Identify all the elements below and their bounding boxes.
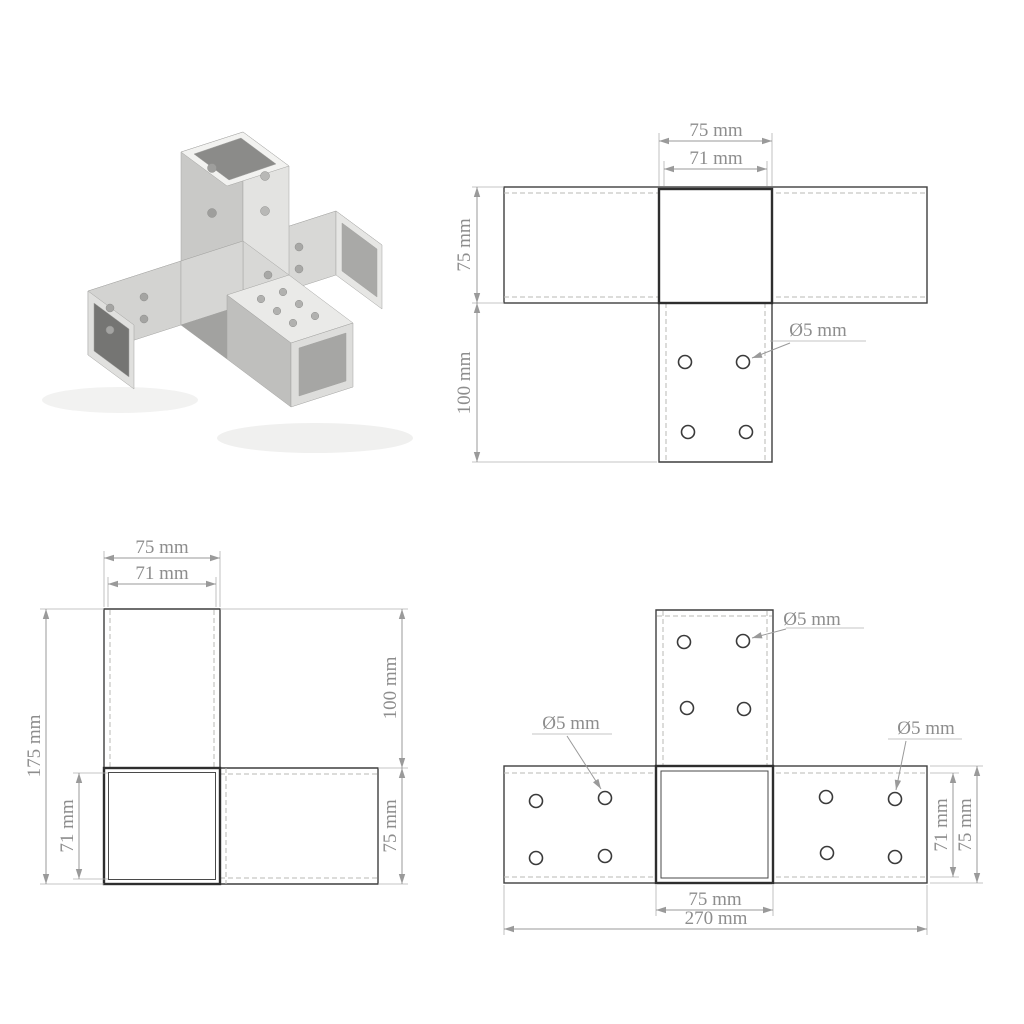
shadow (217, 423, 413, 453)
leg-fill (657, 611, 772, 766)
connector-front-arm (227, 275, 353, 407)
bolt-hole (289, 319, 297, 327)
bolt-hole (273, 307, 281, 315)
dim-side-height-75: 75 mm (454, 187, 504, 303)
bolt-hole (279, 288, 287, 296)
dim-side-height-75: 75 mm (378, 768, 408, 884)
dimension-label: 75 mm (688, 889, 742, 910)
dimension-label: 71 mm (931, 798, 952, 852)
bolt-hole (740, 426, 753, 439)
dim-inner-height-71: 71 mm (57, 773, 108, 879)
bolt-hole (295, 243, 303, 251)
hole-diameter-label: Ø5 mm (783, 609, 841, 630)
bolt-hole (679, 356, 692, 369)
dimension-label: 75 mm (454, 218, 475, 272)
bolt-hole (140, 293, 148, 301)
bolt-hole (821, 847, 834, 860)
composite-figure: 75 mm 71 mm 75 mm 100 mm Ø5 mm (0, 0, 1024, 1024)
product-listing-image: 75 mm 71 mm 75 mm 100 mm Ø5 mm (0, 0, 1024, 1024)
bolt-hole (737, 356, 750, 369)
bolt-hole (820, 791, 833, 804)
horizontal-leg-outline (220, 768, 378, 884)
bolt-hole (678, 636, 691, 649)
dimension-label: 75 mm (689, 120, 743, 141)
hole-diameter-label: Ø5 mm (897, 718, 955, 739)
bolt-hole (738, 703, 751, 716)
bolt-hole (599, 850, 612, 863)
bolt-hole (106, 326, 114, 334)
bolt-hole (530, 795, 543, 808)
dimension-label: 71 mm (689, 148, 743, 169)
bolt-hole (311, 312, 319, 320)
bolt-hole (295, 265, 303, 273)
shadow (42, 387, 198, 413)
post-cross-section (656, 766, 773, 883)
dimension-label: 75 mm (135, 537, 189, 558)
post-cross-section (659, 189, 772, 303)
bolt-hole (889, 793, 902, 806)
drawing-top-right: 75 mm 71 mm 75 mm 100 mm Ø5 mm (454, 120, 927, 462)
bolt-hole (264, 271, 272, 279)
dim-top-width-71: 71 mm (664, 148, 767, 186)
dimension-label: 270 mm (685, 908, 748, 929)
bolt-hole (208, 164, 217, 173)
dimension-label: 100 mm (380, 656, 401, 719)
bolt-hole (599, 792, 612, 805)
dimension-label: 75 mm (380, 799, 401, 853)
dim-leg-height-100: 100 mm (454, 303, 657, 462)
dim-leg-height-100: 100 mm (220, 609, 408, 768)
hole-diameter-label: Ø5 mm (542, 713, 600, 734)
bolt-hole (889, 851, 902, 864)
bolt-hole (682, 426, 695, 439)
bolt-hole (257, 295, 265, 303)
dimension-label: 100 mm (454, 351, 475, 414)
bolt-hole (261, 207, 270, 216)
bolt-hole (261, 172, 270, 181)
drawing-bottom-left: 75 mm 71 mm 175 mm 71 mm (24, 537, 408, 884)
dimension-label: 75 mm (955, 798, 976, 852)
leg-fill (105, 610, 219, 767)
dimension-label: 71 mm (57, 799, 78, 853)
bolt-hole (106, 304, 114, 312)
post-cross-section (104, 768, 220, 884)
bolt-hole (681, 702, 694, 715)
product-photo (42, 132, 413, 453)
bolt-hole (737, 635, 750, 648)
dim-top-width-71: 71 mm (108, 563, 216, 607)
drawing-bottom-right: Ø5 mm Ø5 mm Ø5 mm 75 mm (504, 609, 983, 935)
bolt-hole (140, 315, 148, 323)
leg-fill (660, 303, 771, 461)
bolt-hole (295, 300, 303, 308)
dimension-label: 175 mm (24, 714, 45, 777)
hole-diameter-label: Ø5 mm (789, 320, 847, 341)
bolt-hole (530, 852, 543, 865)
dimension-label: 71 mm (135, 563, 189, 584)
bolt-hole (208, 209, 217, 218)
